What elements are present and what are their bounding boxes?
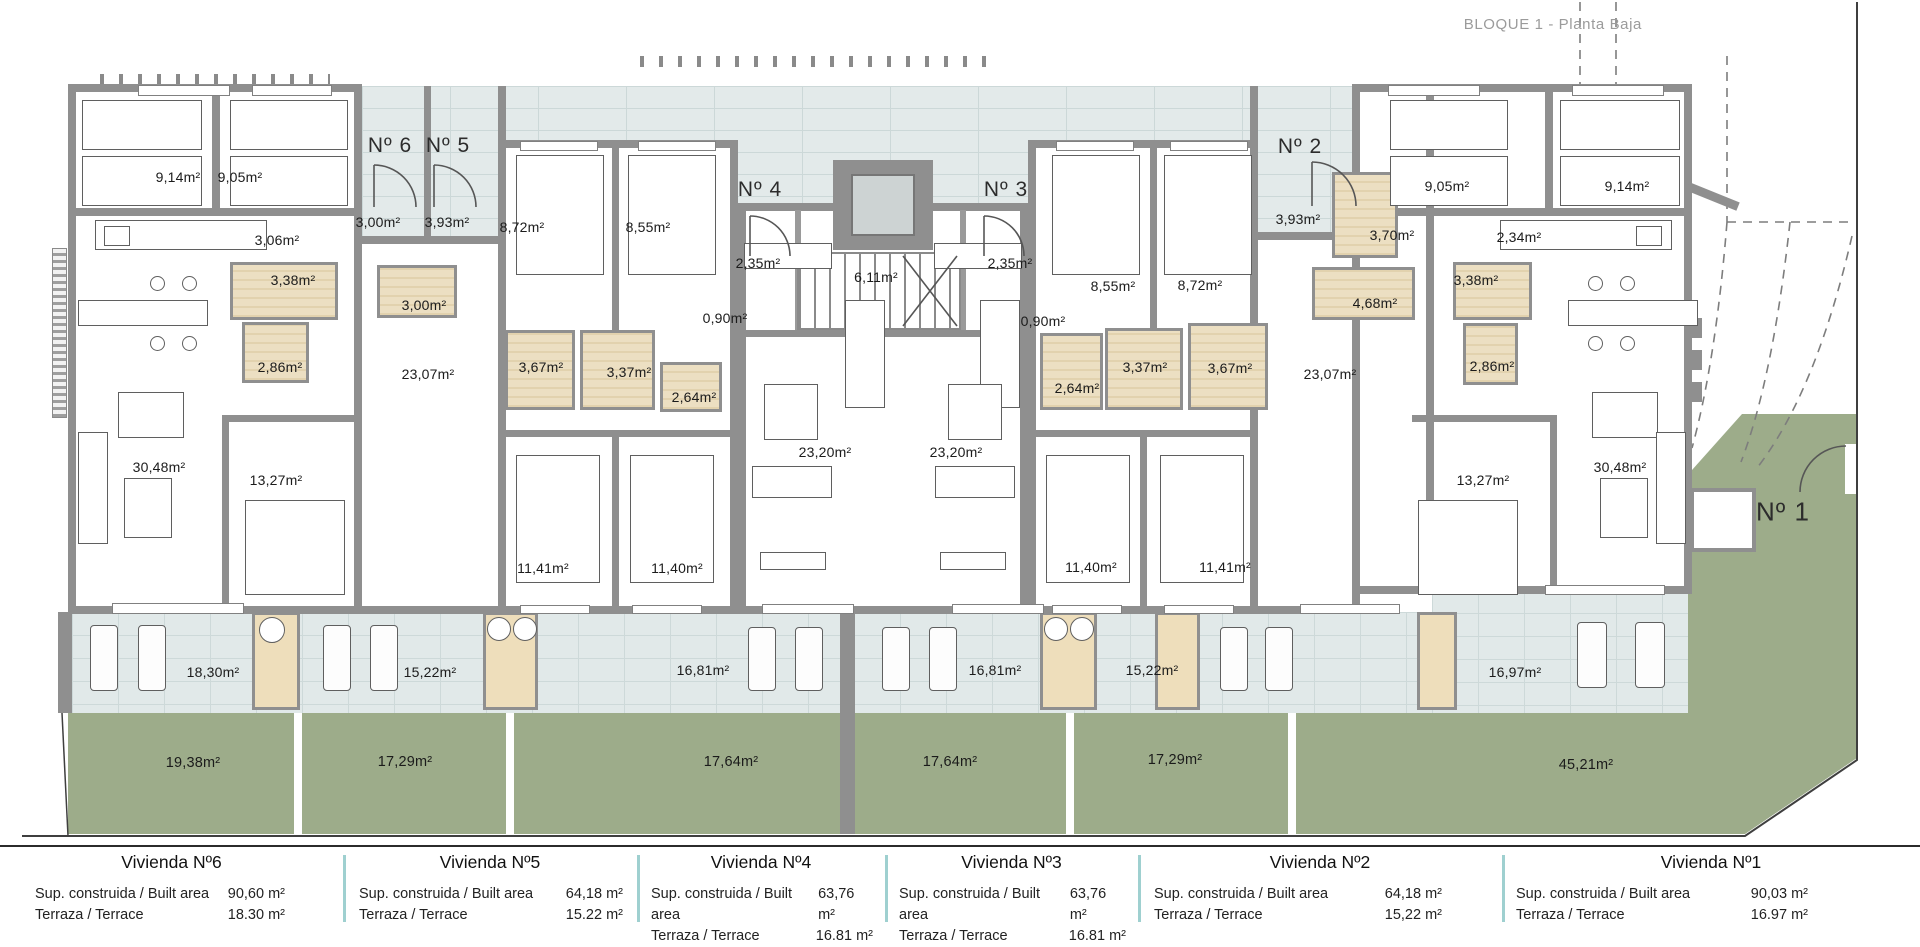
area-label: 2,35m² xyxy=(736,255,781,271)
vivienda-title: Vivienda Nº3 xyxy=(885,852,1138,873)
window-opening xyxy=(762,604,854,614)
area-label: 11,41m² xyxy=(517,560,569,576)
bed xyxy=(1418,500,1518,595)
terrace-area-row: Terraza / Terrace16.81 m² xyxy=(651,926,873,947)
stool xyxy=(1588,276,1603,291)
bed xyxy=(1164,155,1252,275)
sun-lounger xyxy=(1220,627,1248,691)
row-label: Terraza / Terrace xyxy=(899,926,1008,947)
bed xyxy=(628,155,716,275)
area-label: 2,86m² xyxy=(258,359,303,375)
window-opening xyxy=(1170,141,1248,151)
dining-table xyxy=(1592,392,1658,438)
sun-lounger xyxy=(323,625,351,691)
area-label: 30,48m² xyxy=(133,459,186,475)
kitchen-island xyxy=(845,300,885,408)
legend-column: Vivienda Nº3Sup. construida / Built area… xyxy=(885,847,1138,922)
area-label: 3,93m² xyxy=(425,214,470,230)
window-opening xyxy=(1164,605,1234,614)
area-label: 11,40m² xyxy=(1065,559,1117,575)
dining-table xyxy=(764,384,818,440)
sofa xyxy=(935,466,1015,498)
terrace-area-row: Terraza / Terrace15,22 m² xyxy=(1154,905,1442,926)
area-label: 23,07m² xyxy=(402,366,455,382)
bathroom-area xyxy=(1453,262,1532,320)
area-label: 8,55m² xyxy=(1091,278,1136,294)
area-label: 3,67m² xyxy=(1208,360,1253,376)
window-opening xyxy=(1056,141,1134,151)
area-label: 2,64m² xyxy=(672,389,717,405)
column-separator xyxy=(637,855,640,922)
tv-unit xyxy=(760,552,826,570)
sofa xyxy=(78,432,108,544)
washing-machine-icon xyxy=(259,617,285,643)
floor-plan-canvas: BLOQUE 1 - Planta Baja xyxy=(0,0,1920,920)
wall-segment xyxy=(212,84,220,216)
washing-machine-icon xyxy=(487,617,511,641)
area-label: 2,86m² xyxy=(1470,358,1515,374)
row-value: 16.97 m² xyxy=(1751,905,1808,926)
sun-lounger xyxy=(370,625,398,691)
terrace-area-row: Terraza / Terrace18.30 m² xyxy=(35,905,285,926)
column-separator xyxy=(885,855,888,922)
row-label: Terraza / Terrace xyxy=(651,926,760,947)
terrace-storage xyxy=(1417,612,1457,710)
kitchen-island xyxy=(1568,300,1698,326)
legend-column: Vivienda Nº4Sup. construida / Built area… xyxy=(637,847,885,922)
window-opening xyxy=(1545,585,1665,595)
washing-machine-icon xyxy=(1044,617,1068,641)
area-label: 3,37m² xyxy=(607,364,652,380)
sun-lounger xyxy=(90,625,118,691)
wall-segment xyxy=(58,612,72,713)
washing-machine-icon xyxy=(1070,617,1094,641)
bed xyxy=(245,500,345,595)
area-label: 17,64m² xyxy=(704,754,759,770)
area-label: 23,07m² xyxy=(1304,366,1357,382)
area-label: 17,29m² xyxy=(378,754,433,770)
bed xyxy=(82,100,202,150)
window-shutter xyxy=(52,248,67,418)
window-opening xyxy=(1388,85,1480,96)
entrance-label: Nº 5 xyxy=(426,134,470,158)
column-separator xyxy=(343,855,346,922)
area-label: 0,90m² xyxy=(703,310,748,326)
area-label: 2,35m² xyxy=(988,255,1033,271)
area-label: 9,05m² xyxy=(218,169,263,185)
legend-table: Vivienda Nº6Sup. construida / Built area… xyxy=(0,845,1920,922)
row-label: Terraza / Terrace xyxy=(35,905,144,926)
area-label: 8,72m² xyxy=(1178,277,1223,293)
area-label: 8,55m² xyxy=(626,219,671,235)
area-label: 4,68m² xyxy=(1353,295,1398,311)
row-label: Terraza / Terrace xyxy=(359,905,468,926)
elevator-car xyxy=(851,174,915,236)
coffee-table xyxy=(1600,478,1648,538)
entrance-label: Nº 4 xyxy=(738,178,782,202)
area-label: 19,38m² xyxy=(166,755,221,771)
row-value: 16.81 m² xyxy=(816,926,873,947)
bed xyxy=(230,100,348,150)
sun-lounger xyxy=(795,627,823,691)
tv-unit xyxy=(940,552,1006,570)
wall-segment xyxy=(612,430,619,614)
bathroom-area xyxy=(230,262,338,320)
sun-lounger xyxy=(748,627,776,691)
entrance-label: Nº 3 xyxy=(984,178,1028,202)
sink xyxy=(1636,226,1662,246)
stool xyxy=(1620,276,1635,291)
area-label: 3,38m² xyxy=(1454,272,1499,288)
sun-lounger xyxy=(1635,622,1665,688)
area-label: 45,21m² xyxy=(1559,757,1614,773)
column-separator xyxy=(1502,855,1505,922)
vivienda-title: Vivienda Nº4 xyxy=(637,852,885,873)
stool xyxy=(150,336,165,351)
sofa xyxy=(752,466,832,498)
area-label: 15,22m² xyxy=(404,664,457,680)
terrace-area-row: Terraza / Terrace15.22 m² xyxy=(359,905,623,926)
dining-table xyxy=(948,384,1002,440)
area-label: 23,20m² xyxy=(799,444,852,460)
window-opening xyxy=(112,603,244,614)
area-label: 23,20m² xyxy=(930,444,983,460)
terrace-area-row: Terraza / Terrace16.81 m² xyxy=(899,926,1126,947)
area-label: 2,64m² xyxy=(1055,380,1100,396)
wall-segment xyxy=(1550,415,1557,594)
bed xyxy=(1052,155,1140,275)
row-label: Terraza / Terrace xyxy=(1154,905,1263,926)
area-label: 9,05m² xyxy=(1425,178,1470,194)
plan-title: BLOQUE 1 - Planta Baja xyxy=(1464,16,1642,33)
area-label: 8,72m² xyxy=(500,219,545,235)
column-separator xyxy=(1138,855,1141,922)
area-label: 15,22m² xyxy=(1126,662,1179,678)
wall-segment xyxy=(498,86,506,142)
sun-lounger xyxy=(882,627,910,691)
area-label: 3,38m² xyxy=(271,272,316,288)
sun-lounger xyxy=(929,627,957,691)
stool xyxy=(1588,336,1603,351)
built-area-row: Sup. construida / Built area90,03 m² xyxy=(1516,884,1808,905)
ticks xyxy=(640,56,1000,67)
wall-segment xyxy=(840,612,855,713)
bathroom-area xyxy=(1312,267,1415,320)
row-value: 18.30 m² xyxy=(228,905,285,926)
wall-segment xyxy=(1150,140,1157,336)
area-label: 0,90m² xyxy=(1021,313,1066,329)
area-label: 3,93m² xyxy=(1276,211,1321,227)
area-label: 3,00m² xyxy=(402,297,447,313)
stool xyxy=(182,336,197,351)
built-area-row: Sup. construida / Built area64,18 m² xyxy=(359,884,623,905)
stool xyxy=(1620,336,1635,351)
area-label: 3,00m² xyxy=(356,214,401,230)
vivienda-title: Vivienda Nº1 xyxy=(1502,852,1920,873)
area-label: 17,29m² xyxy=(1148,752,1203,768)
vivienda-title: Vivienda Nº2 xyxy=(1138,852,1502,873)
bathroom-area xyxy=(1463,323,1518,385)
area-label: 11,41m² xyxy=(1199,559,1251,575)
legend-column: Vivienda Nº6Sup. construida / Built area… xyxy=(0,847,343,922)
window-opening xyxy=(1572,85,1664,96)
built-area-row: Sup. construida / Built area64,18 m² xyxy=(1154,884,1442,905)
bathroom-area xyxy=(1040,333,1103,410)
legend-column: Vivienda Nº1Sup. construida / Built area… xyxy=(1502,847,1920,922)
window-opening xyxy=(520,605,590,614)
area-label: 3,37m² xyxy=(1123,359,1168,375)
window-opening xyxy=(632,605,702,614)
area-label: 3,67m² xyxy=(519,359,564,375)
terrace-storage xyxy=(1155,612,1200,710)
area-label: 16,81m² xyxy=(677,662,730,678)
area-label: 17,64m² xyxy=(923,754,978,770)
entrance-label: Nº 1 xyxy=(1756,497,1810,528)
area-label: 3,06m² xyxy=(255,232,300,248)
window-opening xyxy=(1300,604,1400,614)
area-label: 9,14m² xyxy=(1605,178,1650,194)
row-value: 90,60 m² xyxy=(228,884,285,905)
stool xyxy=(182,276,197,291)
row-label: Sup. construida / Built area xyxy=(35,884,209,905)
area-label: 13,27m² xyxy=(1457,472,1510,488)
bathroom-area xyxy=(1332,172,1398,258)
wall-segment xyxy=(1688,350,1702,370)
row-label: Terraza / Terrace xyxy=(1516,905,1625,926)
window-opening xyxy=(252,85,332,96)
washing-machine-icon xyxy=(513,617,537,641)
wall-segment xyxy=(1250,86,1258,142)
area-label: 2,34m² xyxy=(1497,229,1542,245)
wall-segment xyxy=(1140,430,1147,614)
area-label: 9,14m² xyxy=(156,169,201,185)
sofa xyxy=(1656,432,1686,544)
window-opening xyxy=(520,141,598,151)
vivienda-title: Vivienda Nº5 xyxy=(343,852,637,873)
sun-lounger xyxy=(1265,627,1293,691)
dining-table xyxy=(118,392,184,438)
sink xyxy=(104,226,130,246)
legend-column: Vivienda Nº5Sup. construida / Built area… xyxy=(343,847,637,922)
row-value: 15,22 m² xyxy=(1385,905,1442,926)
wall-segment xyxy=(1545,84,1553,216)
row-value: 16.81 m² xyxy=(1069,926,1126,947)
area-label: 16,97m² xyxy=(1489,664,1542,680)
row-label: Sup. construida / Built area xyxy=(359,884,533,905)
vivienda-title: Vivienda Nº6 xyxy=(0,852,343,873)
wall-segment xyxy=(1352,208,1692,216)
area-label: 6,11m² xyxy=(854,269,898,285)
kitchen-island xyxy=(78,300,208,326)
row-value: 15.22 m² xyxy=(566,905,623,926)
window-opening xyxy=(1052,605,1122,614)
row-value: 64,18 m² xyxy=(1385,884,1442,905)
row-label: Sup. construida / Built area xyxy=(1516,884,1690,905)
sun-lounger xyxy=(138,625,166,691)
wall-segment xyxy=(222,415,354,422)
window-opening xyxy=(638,141,716,151)
area-label: 11,40m² xyxy=(651,560,703,576)
terrace-area-row: Terraza / Terrace16.97 m² xyxy=(1516,905,1808,926)
wall-segment xyxy=(612,140,619,336)
area-label: 16,81m² xyxy=(969,662,1022,678)
bed xyxy=(1390,100,1508,150)
area-label: 30,48m² xyxy=(1594,459,1647,475)
area-label: 13,27m² xyxy=(250,472,303,488)
entrance-label: Nº 2 xyxy=(1278,135,1322,159)
row-value: 90,03 m² xyxy=(1751,884,1808,905)
wall-segment xyxy=(1412,415,1557,422)
stool xyxy=(150,276,165,291)
area-label: 3,70m² xyxy=(1370,227,1415,243)
window-opening xyxy=(138,85,230,96)
entrance-label: Nº 6 xyxy=(368,134,412,158)
coffee-table xyxy=(124,478,172,538)
sun-lounger xyxy=(1577,622,1607,688)
bed xyxy=(516,155,604,275)
built-area-row: Sup. construida / Built area90,60 m² xyxy=(35,884,285,905)
wall-segment xyxy=(1688,382,1702,402)
row-value: 64,18 m² xyxy=(566,884,623,905)
legend-column: Vivienda Nº2Sup. construida / Built area… xyxy=(1138,847,1502,922)
area-label: 18,30m² xyxy=(187,664,240,680)
window-opening xyxy=(952,604,1044,614)
bed xyxy=(1560,100,1680,150)
row-label: Sup. construida / Built area xyxy=(1154,884,1328,905)
wall-segment xyxy=(222,415,229,614)
